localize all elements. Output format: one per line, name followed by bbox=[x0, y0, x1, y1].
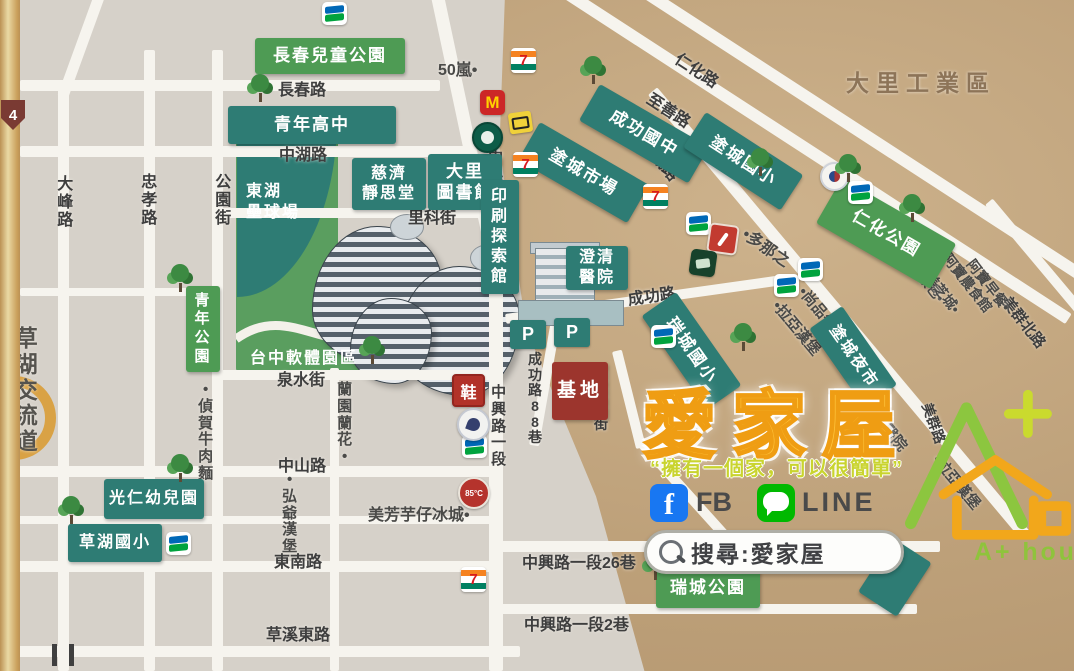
facebook-icon[interactable]: f bbox=[650, 484, 688, 522]
search-icon bbox=[659, 540, 683, 564]
familymart-icon bbox=[166, 532, 191, 555]
railway-mark bbox=[52, 644, 57, 666]
tree-icon bbox=[246, 74, 274, 98]
poi-ruicheng-park: 瑞城公園 bbox=[656, 568, 760, 608]
tree-icon bbox=[358, 336, 386, 360]
familymart-icon bbox=[686, 212, 711, 235]
poi-zhenhe-beef-noodle: • 偵 賀 牛 肉 麵 bbox=[197, 382, 214, 483]
map-canvas: 東湖 壘球場 台中軟體園區 4 愛家屋 “擁有一個家，可以很簡單” f FB L… bbox=[0, 0, 1074, 671]
poi-lanyuan-orchid: 蘭 園 蘭 花 • bbox=[336, 382, 353, 466]
poi-guangren-kindergarten: 光仁幼兒園 bbox=[104, 479, 204, 519]
tree-icon bbox=[57, 496, 85, 520]
tree-icon bbox=[834, 154, 862, 178]
poi-tzuchi-hall: 慈濟 靜思堂 bbox=[352, 158, 426, 210]
road-label-caoxi-east: 草溪東路 bbox=[266, 621, 330, 645]
line-icon[interactable] bbox=[757, 484, 795, 522]
seven-eleven-icon: 7 bbox=[511, 48, 536, 73]
road-label-changchun: 長春路 bbox=[278, 76, 326, 100]
parking-icon-label: P bbox=[522, 324, 534, 345]
poi-printing-museum: 印 刷 探 索 館 bbox=[481, 180, 519, 294]
search-text: 搜尋:愛家屋 bbox=[691, 535, 826, 569]
shoe-store-icon-label: 鞋 bbox=[460, 379, 476, 403]
starbucks-icon bbox=[472, 122, 503, 153]
parking-icon: P bbox=[510, 320, 546, 349]
poi-chengching-hospital: 澄清 醫院 bbox=[566, 246, 628, 290]
road-label-lane2: 中興路一段2巷 bbox=[524, 611, 629, 635]
logo-wordmark: A+ house bbox=[974, 538, 1074, 566]
road-dongnan bbox=[0, 561, 502, 572]
parking-icon-label: P bbox=[566, 322, 578, 343]
road-label-dafeng: 大 峰 路 bbox=[56, 176, 74, 230]
road-label-lane26: 中興路一段26巷 bbox=[522, 549, 636, 573]
familymart-icon bbox=[774, 274, 799, 297]
road-zhongshan bbox=[0, 466, 502, 477]
facebook-label: FB bbox=[696, 487, 732, 518]
brand-slogan: “擁有一個家，可以很簡單” bbox=[650, 452, 903, 481]
mcdonalds-icon: M bbox=[480, 90, 505, 115]
store-badge-icon bbox=[457, 408, 490, 441]
85c-cafe-icon: 85°C bbox=[458, 477, 490, 509]
road-label-gongyuan-st: 公 園 街 bbox=[214, 174, 232, 228]
tree-icon bbox=[729, 323, 757, 347]
poi-50lan: 50嵐• bbox=[438, 56, 477, 80]
road-minor-left bbox=[20, 288, 212, 296]
poi-changchun-childrens-park: 長春兒童公園 bbox=[255, 38, 405, 74]
85c-cafe-icon-label: 85°C bbox=[465, 489, 483, 498]
familymart-icon bbox=[322, 2, 347, 25]
shoe-store-icon: 鞋 bbox=[452, 374, 485, 407]
road-changchun bbox=[20, 80, 440, 91]
road-label-zhonghu: 中湖路 bbox=[279, 141, 327, 165]
seven-eleven-icon-label: 7 bbox=[519, 52, 527, 69]
seven-eleven-icon: 7 bbox=[643, 184, 668, 209]
road-zhonghu bbox=[20, 146, 465, 157]
tree-icon bbox=[166, 264, 194, 288]
road-label-quanshui-st: 泉水街 bbox=[277, 366, 325, 390]
green-store-icon bbox=[688, 248, 717, 277]
softball-field-label: 東湖 壘球場 bbox=[246, 182, 300, 224]
poi-meifang-taro-ice: 美芳芋仔冰城• bbox=[368, 501, 470, 525]
road-label-lane88: 成 功 路 8 8 巷 bbox=[527, 352, 543, 446]
parking-icon: P bbox=[554, 318, 590, 347]
seven-eleven-icon: 7 bbox=[513, 152, 538, 177]
poi-qingnian-park: 青 年 公 園 bbox=[186, 286, 220, 372]
road-label-zhongxing-south: 中 興 路 一 段 bbox=[490, 385, 507, 469]
yellow-store-icon bbox=[508, 111, 534, 135]
tree-icon bbox=[746, 148, 774, 172]
poi-qingnian-high-school: 青年高中 bbox=[228, 106, 396, 144]
poi-hongye-burger: • 弘 爺 漢 堡 bbox=[281, 472, 298, 556]
seven-eleven-icon-label: 7 bbox=[469, 571, 477, 588]
familymart-icon bbox=[798, 258, 823, 281]
poi-caohu-elementary: 草湖國小 bbox=[68, 524, 162, 562]
mcdonalds-icon-label: M bbox=[485, 93, 499, 113]
road-label-zhongxiao: 忠 孝 路 bbox=[140, 174, 158, 228]
poi-site: 基地 bbox=[552, 362, 608, 420]
logo-plus-icon bbox=[1009, 395, 1047, 433]
district-label-dali-industrial: 大里工業區 bbox=[846, 64, 996, 98]
tree-icon bbox=[166, 454, 194, 478]
railway-mark bbox=[69, 644, 74, 666]
search-bar[interactable]: 搜尋:愛家屋 bbox=[644, 530, 904, 574]
road-caoxi-east bbox=[0, 646, 520, 657]
seven-eleven-icon: 7 bbox=[461, 567, 486, 592]
seven-eleven-icon-label: 7 bbox=[521, 156, 529, 173]
road-zhongxiao bbox=[144, 50, 155, 671]
familymart-icon bbox=[848, 181, 873, 204]
tree-icon bbox=[579, 56, 607, 80]
software-park-label: 台中軟體園區 bbox=[250, 344, 358, 368]
seven-eleven-icon-label: 7 bbox=[651, 188, 659, 205]
familymart-icon bbox=[651, 325, 676, 348]
line-label: LINE bbox=[802, 487, 876, 518]
tree-icon bbox=[898, 194, 926, 218]
